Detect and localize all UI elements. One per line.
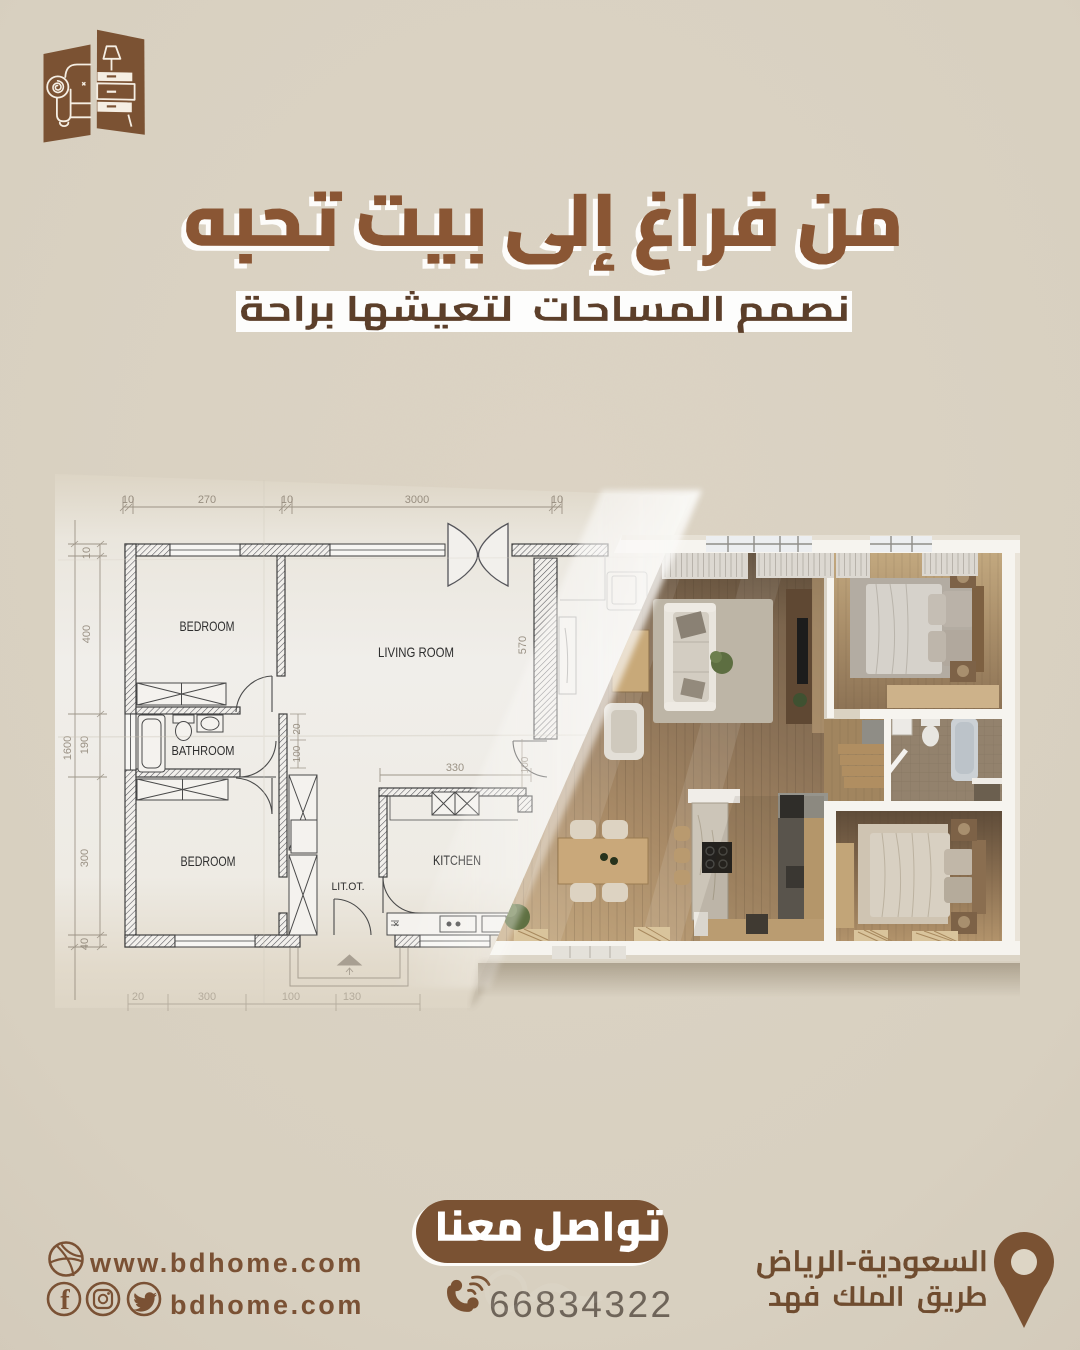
svg-text:BATHROOM: BATHROOM [172,743,235,758]
svg-text:190: 190 [79,736,91,754]
svg-text:3000: 3000 [405,494,429,506]
svg-text:20: 20 [132,991,144,1003]
svg-text:570: 570 [517,636,529,654]
svg-text:10: 10 [81,547,93,559]
svg-text:20: 20 [292,723,303,735]
svg-text:f: f [60,1285,70,1316]
svg-text:130: 130 [343,991,361,1003]
svg-text:100: 100 [292,745,303,762]
svg-text:10: 10 [551,494,563,506]
svg-text:LIVING ROOM: LIVING ROOM [378,644,454,660]
svg-text:400: 400 [81,625,93,643]
svg-text:BEDROOM: BEDROOM [180,618,235,634]
svg-text:40: 40 [79,938,91,950]
svg-text:270: 270 [198,494,216,506]
svg-text:10: 10 [122,494,134,506]
svg-text:100: 100 [282,991,300,1003]
svg-text:bdhome.com: bdhome.com [170,1290,364,1320]
svg-text:300: 300 [198,991,216,1003]
svg-text:10: 10 [281,494,293,506]
svg-text:BEDROOM: BEDROOM [181,853,236,869]
svg-text:LIT.OT.: LIT.OT. [332,881,365,893]
svg-text:1600: 1600 [62,736,74,760]
svg-text:www.bdhome.com: www.bdhome.com [89,1248,364,1278]
svg-text:330: 330 [446,762,464,774]
svg-text:300: 300 [79,849,91,867]
